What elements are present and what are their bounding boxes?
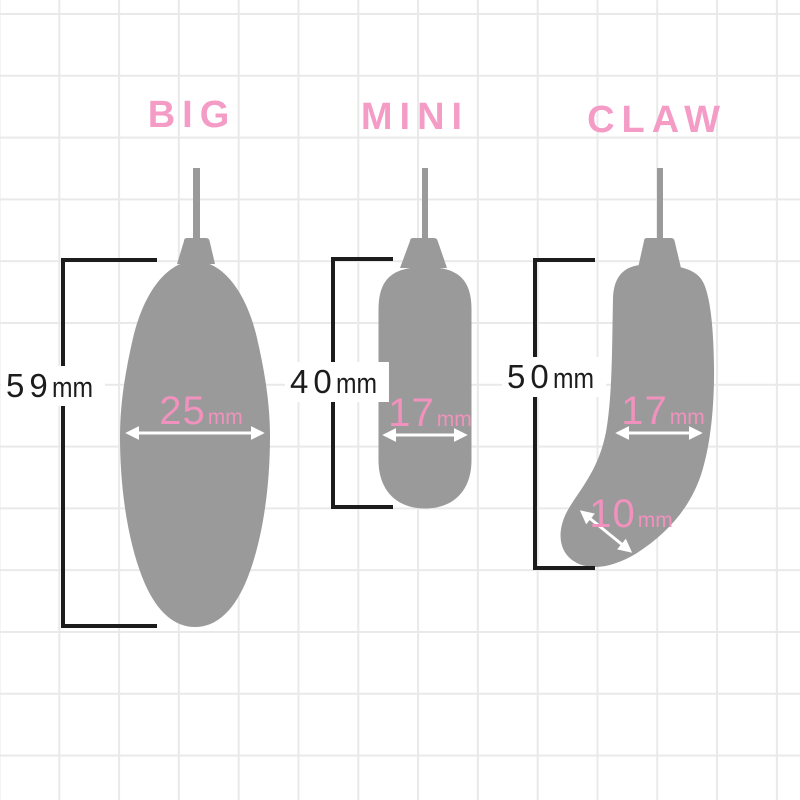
claw-height-value: 50 (507, 358, 554, 395)
claw-width-label: 17mm (621, 391, 705, 431)
claw-tip-label: 10mm (589, 494, 673, 534)
claw-width-unit: mm (670, 406, 705, 429)
claw-title: CLAW (587, 101, 727, 139)
claw-tip-value: 10 (589, 492, 636, 536)
big-height-unit: mm (52, 374, 93, 403)
claw-cap (638, 238, 681, 268)
big-egg-body (120, 261, 270, 627)
claw-cord (657, 168, 663, 243)
mini-title: MINI (361, 98, 469, 136)
mini-height-label: 40mm (285, 362, 389, 402)
big-height-label: 59mm (1, 366, 105, 406)
claw-height-label: 50mm (502, 357, 606, 397)
big-width-label: 25mm (159, 391, 243, 431)
mini-width-unit: mm (437, 408, 472, 431)
big-width-value: 25 (159, 389, 206, 433)
claw-width-value: 17 (621, 389, 668, 433)
big-cord (193, 168, 200, 244)
mini-cap (400, 238, 447, 268)
mini-height-unit: mm (336, 370, 377, 399)
mini-height-value: 40 (290, 363, 337, 400)
claw-height-unit: mm (553, 365, 594, 394)
mini-silhouette (379, 168, 472, 509)
mini-cord (422, 168, 428, 243)
mini-capsule-body (379, 267, 472, 509)
big-height-value: 59 (6, 367, 53, 404)
size-comparison-diagram: BIG MINI CLAW 59mm 40mm 50mm 25mm 17mm 1… (0, 0, 800, 800)
big-cap (177, 238, 215, 264)
big-title: BIG (148, 96, 237, 134)
big-width-unit: mm (208, 406, 243, 429)
mini-width-value: 17 (388, 391, 435, 435)
mini-width-label: 17mm (388, 393, 472, 433)
claw-tip-unit: mm (638, 509, 673, 532)
